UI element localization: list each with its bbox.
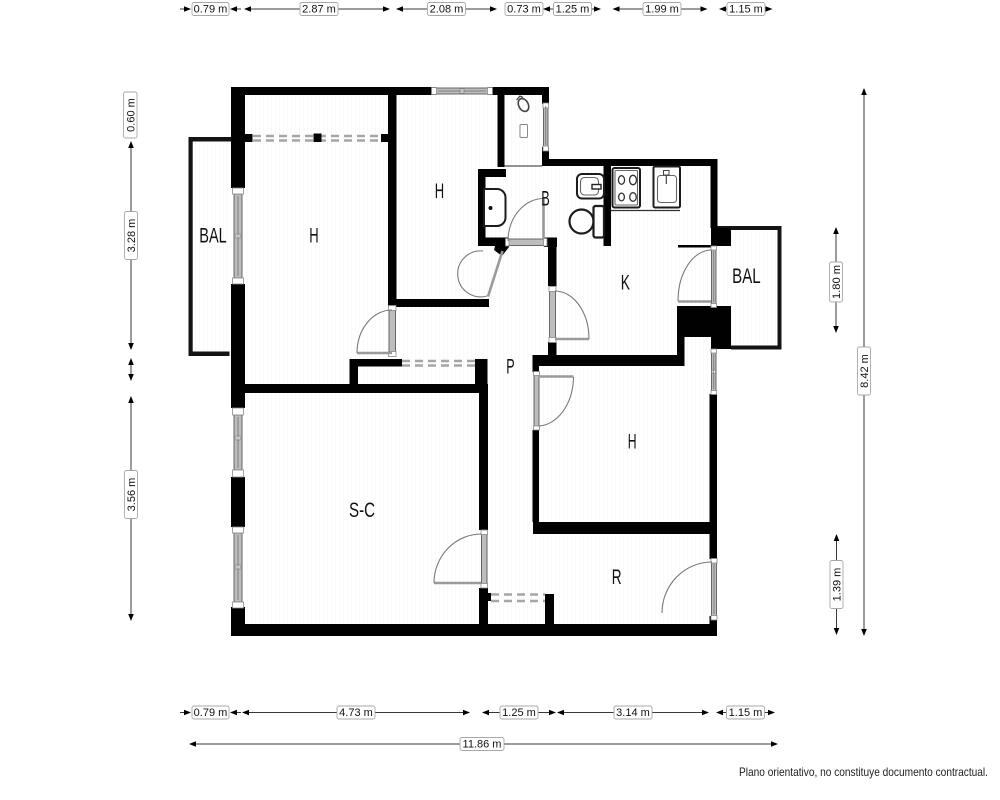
svg-text:1.39 m: 1.39 m xyxy=(831,568,843,602)
svg-text:K: K xyxy=(621,271,630,294)
svg-text:BAL: BAL xyxy=(732,265,761,288)
svg-text:2.87 m: 2.87 m xyxy=(302,3,336,15)
svg-text:BAL: BAL xyxy=(199,225,227,248)
svg-text:3.56 m: 3.56 m xyxy=(126,478,138,512)
svg-text:0.60 m: 0.60 m xyxy=(125,98,137,132)
svg-text:P: P xyxy=(506,355,514,378)
svg-text:H: H xyxy=(309,225,318,248)
svg-text:R: R xyxy=(612,566,622,589)
svg-text:1.25 m: 1.25 m xyxy=(502,707,536,719)
svg-text:11.86 m: 11.86 m xyxy=(463,738,502,750)
svg-text:H: H xyxy=(435,180,444,203)
svg-text:1.99 m: 1.99 m xyxy=(645,3,679,15)
svg-text:Plano orientativo, no constitu: Plano orientativo, no constituye documen… xyxy=(739,765,988,779)
svg-text:1.80 m: 1.80 m xyxy=(831,265,843,299)
svg-text:H: H xyxy=(628,430,637,453)
svg-text:1.15 m: 1.15 m xyxy=(729,3,763,15)
svg-text:2.08 m: 2.08 m xyxy=(430,3,464,15)
svg-text:3.28 m: 3.28 m xyxy=(126,219,138,253)
svg-text:3.14 m: 3.14 m xyxy=(616,707,650,719)
svg-text:0.79 m: 0.79 m xyxy=(194,707,228,719)
svg-text:S-C: S-C xyxy=(349,499,375,522)
svg-text:0.73 m: 0.73 m xyxy=(507,3,541,15)
svg-text:1.25 m: 1.25 m xyxy=(556,3,590,15)
svg-text:4.73 m: 4.73 m xyxy=(339,707,373,719)
svg-text:1.15 m: 1.15 m xyxy=(729,707,763,719)
svg-text:8.42 m: 8.42 m xyxy=(859,354,871,388)
svg-text:B: B xyxy=(541,188,550,211)
svg-text:0.79 m: 0.79 m xyxy=(194,3,228,15)
